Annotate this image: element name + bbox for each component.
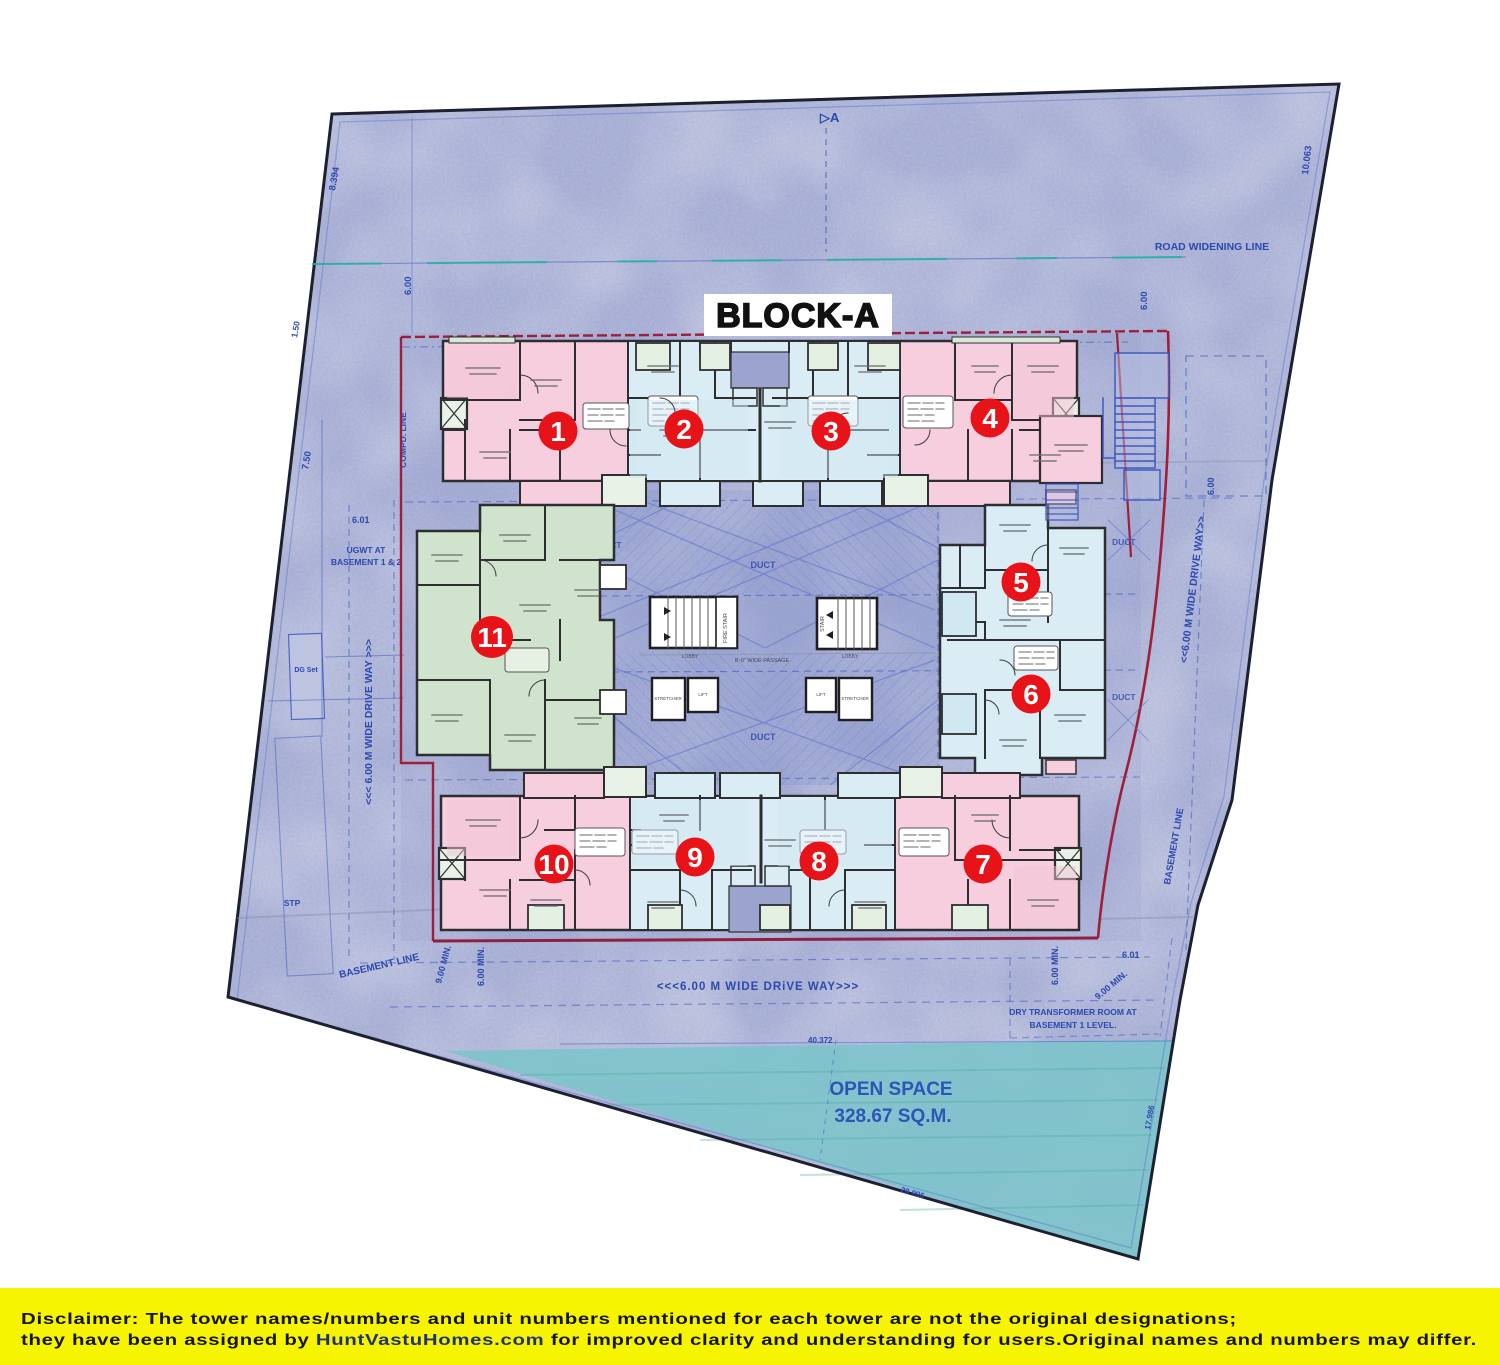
svg-text:DUCT: DUCT — [1112, 537, 1136, 547]
svg-text:DUCT: DUCT — [751, 732, 776, 742]
svg-text:STP: STP — [284, 898, 301, 908]
svg-text:6.00: 6.00 — [1206, 477, 1216, 495]
svg-text:2: 2 — [676, 414, 692, 445]
svg-text:LIFT: LIFT — [698, 692, 708, 697]
svg-text:OPEN SPACE: OPEN SPACE — [829, 1079, 952, 1100]
svg-text:LIFT: LIFT — [816, 692, 826, 697]
svg-text:11: 11 — [477, 622, 507, 653]
svg-text:6.00: 6.00 — [403, 277, 414, 296]
svg-text:COMPD. LINE: COMPD. LINE — [398, 412, 408, 468]
svg-text:BASEMENT 1 & 2: BASEMENT 1 & 2 — [331, 557, 402, 567]
svg-text:40.372: 40.372 — [808, 1036, 833, 1045]
svg-text:6.00: 6.00 — [1139, 292, 1150, 311]
svg-text:9: 9 — [687, 842, 703, 873]
svg-text:328.67 SQ.M.: 328.67 SQ.M. — [834, 1106, 951, 1127]
svg-text:8'-0" WIDE PASSAGE: 8'-0" WIDE PASSAGE — [735, 658, 790, 664]
svg-text:UGWT AT: UGWT AT — [347, 545, 387, 555]
svg-text:BASEMENT 1 LEVEL.: BASEMENT 1 LEVEL. — [1030, 1020, 1117, 1030]
svg-text:6.00 MIN.: 6.00 MIN. — [476, 947, 486, 986]
svg-text:STRETCHER: STRETCHER — [841, 696, 869, 701]
svg-text:DRY TRANSFORMER ROOM AT: DRY TRANSFORMER ROOM AT — [1009, 1007, 1137, 1017]
svg-text:6.00 MIN.: 6.00 MIN. — [1050, 946, 1060, 985]
svg-text:7: 7 — [975, 849, 991, 880]
svg-text:10: 10 — [538, 849, 569, 880]
svg-text:1: 1 — [550, 416, 566, 447]
svg-text:STRETCHER: STRETCHER — [654, 696, 682, 701]
svg-text:8: 8 — [811, 846, 827, 877]
svg-text:3: 3 — [823, 416, 839, 447]
svg-text:6.01: 6.01 — [1122, 950, 1140, 960]
svg-text:6: 6 — [1023, 679, 1039, 710]
svg-text:<<< 6.00 M WIDE DRIVE WAY >>>: <<< 6.00 M WIDE DRIVE WAY >>> — [363, 639, 375, 805]
svg-text:LOBBY: LOBBY — [842, 654, 859, 660]
svg-text:<<<6.00 M WIDE DRiVE WAY>>>: <<<6.00 M WIDE DRiVE WAY>>> — [657, 981, 859, 993]
svg-text:▷A: ▷A — [819, 110, 840, 125]
svg-text:4: 4 — [982, 403, 998, 434]
svg-text:STAIR: STAIR — [820, 616, 826, 632]
svg-text:FIRE STAIR: FIRE STAIR — [723, 613, 729, 643]
svg-text:5: 5 — [1013, 567, 1029, 598]
svg-text:they have been assigned by Hun: they have been assigned by HuntVastuHome… — [21, 1332, 1477, 1349]
svg-text:BLOCK-A: BLOCK-A — [716, 297, 880, 335]
svg-text:ROAD WIDENING LINE: ROAD WIDENING LINE — [1155, 241, 1269, 253]
svg-text:DG Set: DG Set — [294, 667, 318, 674]
svg-text:DUCT: DUCT — [751, 560, 776, 570]
svg-text:LOBBY: LOBBY — [682, 654, 699, 660]
svg-text:Disclaimer: The tower names/nu: Disclaimer: The tower names/numbers and … — [21, 1311, 1237, 1328]
svg-text:6.01: 6.01 — [352, 515, 370, 525]
svg-text:DUCT: DUCT — [1112, 692, 1136, 702]
